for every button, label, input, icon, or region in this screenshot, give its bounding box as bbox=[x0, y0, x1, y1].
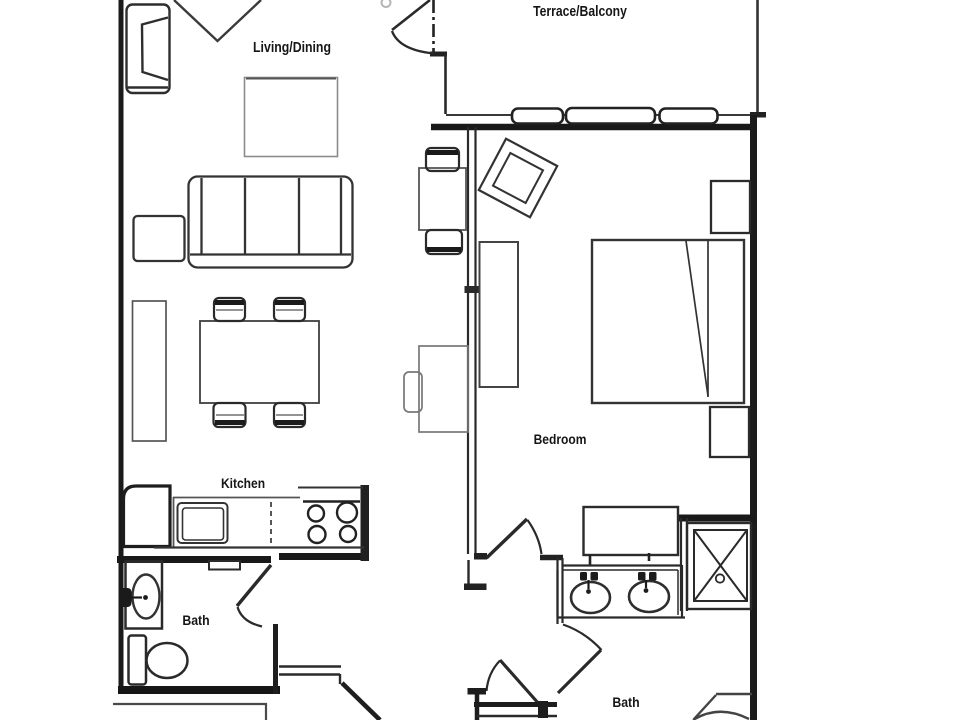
svg-text:Bedroom: Bedroom bbox=[534, 431, 587, 447]
svg-text:Kitchen: Kitchen bbox=[221, 475, 265, 491]
svg-text:Living/Dining: Living/Dining bbox=[253, 39, 331, 55]
svg-text:Bath: Bath bbox=[612, 694, 639, 710]
svg-text:Terrace/Balcony: Terrace/Balcony bbox=[533, 3, 627, 19]
svg-text:Bath: Bath bbox=[182, 612, 209, 628]
